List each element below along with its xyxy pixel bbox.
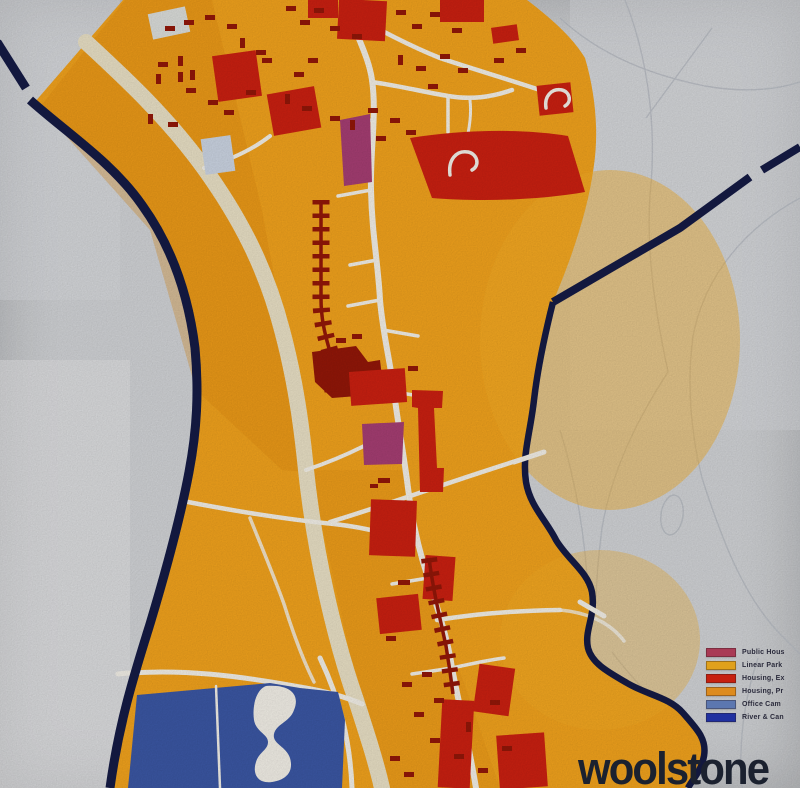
legend-label-public-housing: Public Hous [742,649,785,656]
legend-row-housing-proposed: Housing, Pr [706,687,800,696]
map-title: woolstone [578,746,768,788]
legend-swatch-office-campus [706,700,736,709]
legend-swatch-linear-park [706,661,736,670]
legend-swatch-river-canal [706,713,736,722]
woolstone-plan-map [0,0,800,788]
legend-label-river-canal: River & Can [742,714,784,721]
legend-swatch-public-housing [706,648,736,657]
legend-swatch-housing-existing [706,674,736,683]
paper-grain-overlay [0,0,800,788]
map-canvas: Public Hous Linear Park Housing, Ex Hous… [0,0,800,788]
legend-row-housing-existing: Housing, Ex [706,674,800,683]
legend-swatch-housing-proposed [706,687,736,696]
legend-label-housing-proposed: Housing, Pr [742,688,783,695]
legend-row-river-canal: River & Can [706,713,800,722]
legend-row-linear-park: Linear Park [706,661,800,670]
map-legend: Public Hous Linear Park Housing, Ex Hous… [706,648,800,722]
legend-label-housing-existing: Housing, Ex [742,675,785,682]
legend-label-linear-park: Linear Park [742,662,782,669]
legend-label-office-campus: Office Cam [742,701,781,708]
legend-row-office-campus: Office Cam [706,700,800,709]
legend-row-public-housing: Public Hous [706,648,800,657]
